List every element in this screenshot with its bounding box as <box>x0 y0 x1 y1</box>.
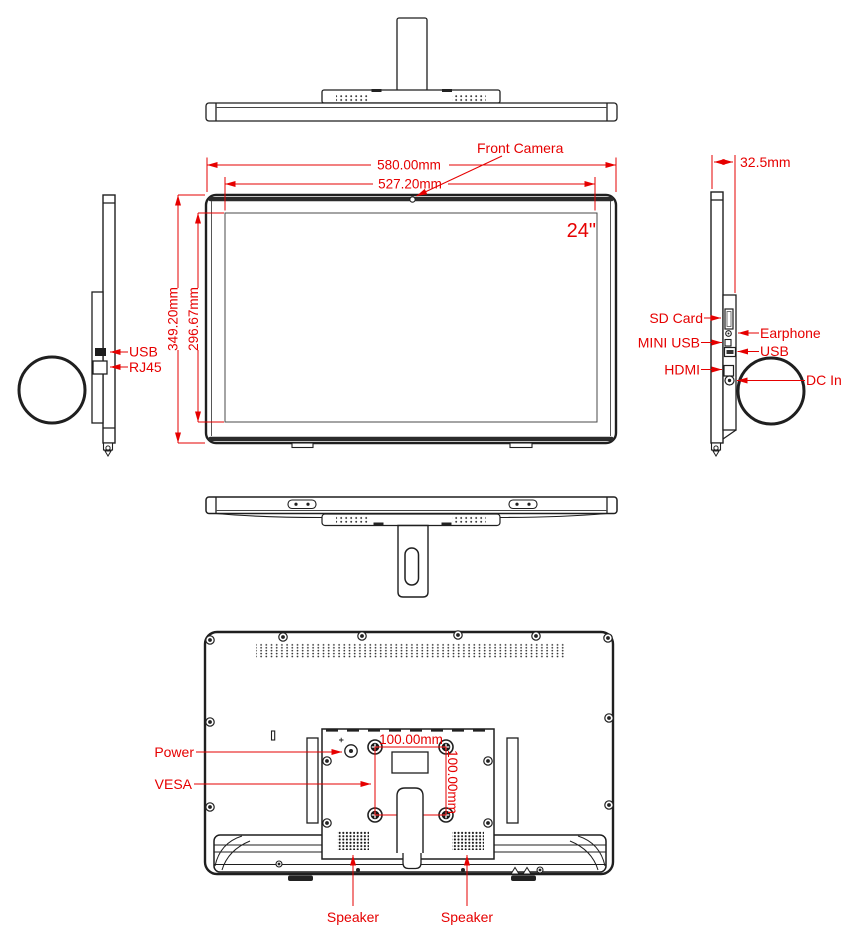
foot-right <box>511 876 536 882</box>
dc-in-callout: DC In <box>737 372 842 388</box>
outer-height-label: 349.20mm <box>166 287 181 351</box>
back-view: Power VESA 100.00mm 100.00mm Speaker Spe… <box>154 631 613 925</box>
speaker-right-label: Speaker <box>441 909 493 925</box>
stand-bracket <box>397 788 423 853</box>
handle-slot-left <box>307 738 318 823</box>
vesa-height-dim: 100.00mm <box>445 750 460 814</box>
usb-callout: USB <box>738 343 789 359</box>
rj45-port <box>93 361 107 374</box>
front-view: 580.00mm 527.20mm 349.20mm 296.67mm Fron… <box>166 140 617 448</box>
technical-drawing-page: 580.00mm 527.20mm 349.20mm 296.67mm Fron… <box>0 0 856 940</box>
front-camera-label: Front Camera <box>477 140 564 156</box>
dim-thickness: 32.5mm <box>712 154 791 293</box>
screen-size-label: 24" <box>567 220 596 242</box>
rj45-label: RJ45 <box>129 359 162 375</box>
screen <box>225 213 597 422</box>
bottom-body-bar <box>206 497 617 514</box>
sd-card-callout: SD Card <box>649 310 721 326</box>
usb-callout: USB <box>110 344 158 360</box>
rear-housing <box>92 292 103 423</box>
stand-column <box>397 18 427 91</box>
vesa-width-label: 100.00mm <box>379 732 443 747</box>
vent-holes <box>452 517 486 525</box>
speaker-grille-right <box>452 831 484 850</box>
earphone-callout: Earphone <box>738 325 821 341</box>
sd-card-label: SD Card <box>649 310 703 326</box>
dc-in-jack <box>725 376 734 385</box>
usb-port-left <box>95 348 106 356</box>
screen-height-label: 296.67mm <box>186 287 201 351</box>
dc-in-label: DC In <box>806 372 842 388</box>
top-view <box>206 18 617 121</box>
vesa-label: VESA <box>155 776 193 792</box>
mini-usb-callout: MINI USB <box>638 335 722 351</box>
plate-cutout <box>392 752 428 773</box>
stand-leg <box>398 526 428 598</box>
vesa-width-dim: 100.00mm <box>379 732 443 747</box>
vesa-height-label: 100.00mm <box>445 750 460 814</box>
right-side-view: 32.5mm SD Card Earphone MINI USB USB HDM… <box>638 154 842 456</box>
screen-width-label: 527.20mm <box>378 177 442 192</box>
stand-bracket-notch <box>403 853 421 869</box>
usb-port-right <box>725 348 736 357</box>
vent-holes <box>336 94 370 102</box>
speaker-left-label: Speaker <box>327 909 379 925</box>
bottom-bezel <box>209 437 614 441</box>
stand-base-circle <box>19 357 85 423</box>
vent-holes <box>336 517 370 525</box>
rj45-callout: RJ45 <box>110 359 162 375</box>
hinge-foot <box>712 443 721 456</box>
usb-label: USB <box>760 343 789 359</box>
hinge-foot <box>104 443 113 456</box>
hdmi-port <box>724 366 734 377</box>
hdmi-label: HDMI <box>664 362 700 378</box>
power-label: Power <box>154 744 194 760</box>
mini-usb-label: MINI USB <box>638 335 700 351</box>
speaker-grille-left <box>337 831 369 850</box>
stand-base-circle <box>738 358 804 424</box>
sd-card-slot <box>725 309 733 329</box>
left-side-view: USB RJ45 <box>19 195 162 456</box>
earphone-label: Earphone <box>760 325 821 341</box>
monitor-dimension-diagram: 580.00mm 527.20mm 349.20mm 296.67mm Fron… <box>0 0 856 940</box>
handle-slot-right <box>507 738 518 823</box>
bottom-view <box>206 497 617 597</box>
usb-label: USB <box>129 344 158 360</box>
outer-width-label: 580.00mm <box>377 158 441 173</box>
vent-holes <box>452 94 486 102</box>
foot-left <box>288 876 313 882</box>
vent-holes <box>256 643 566 658</box>
thickness-label: 32.5mm <box>740 154 791 170</box>
top-body-bar <box>206 103 617 121</box>
front-camera-dot <box>410 197 415 202</box>
panel-profile <box>103 195 115 443</box>
